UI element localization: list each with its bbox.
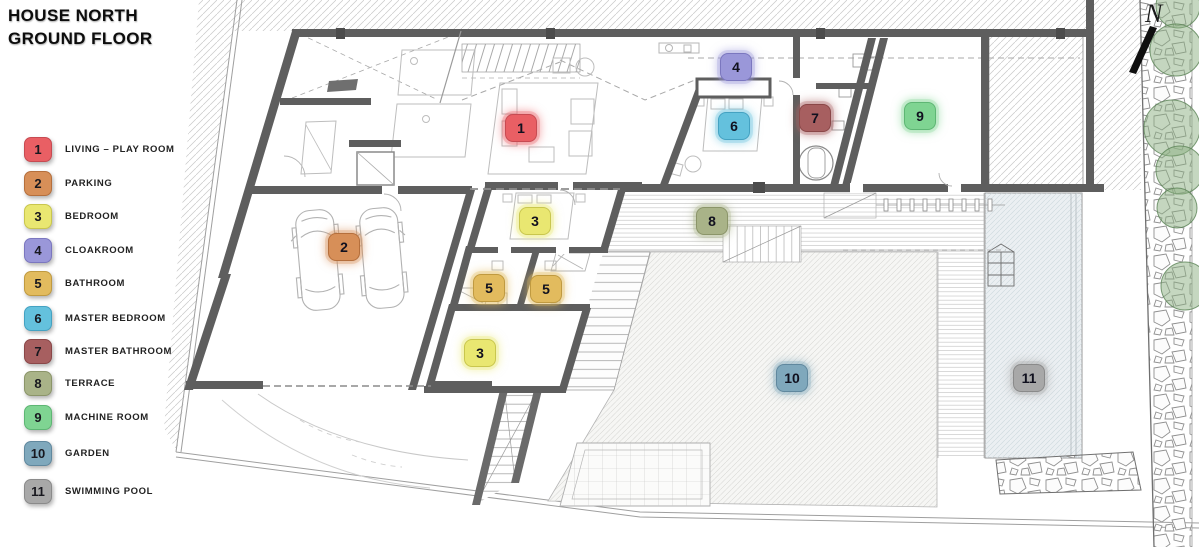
legend-item: 5 BATHROOM [24,272,125,295]
legend: 1 LIVING – PLAY ROOM 2 PARKING 3 BEDROOM… [0,0,220,547]
legend-badge: 6 [24,306,52,331]
legend-item-label: BATHROOM [65,278,125,289]
legend-item-label: PARKING [65,178,112,189]
room-badge: 6 [718,112,750,140]
room-badge: 3 [519,207,551,235]
legend-badge: 8 [24,371,52,396]
room-badge-number: 6 [730,118,738,134]
legend-badge-number: 8 [34,376,41,391]
legend-item: 7 MASTER BATHROOM [24,340,172,363]
room-badge-number: 8 [708,213,716,229]
legend-badge: 3 [24,204,52,229]
room-badge-number: 7 [811,110,819,126]
legend-item-label: MASTER BATHROOM [65,346,172,357]
paved-patio [560,443,710,506]
room-badge-number: 1 [517,120,525,136]
legend-item-label: SWIMMING POOL [65,486,153,497]
legend-badge-number: 10 [31,446,45,461]
legend-item-label: MACHINE ROOM [65,412,149,423]
legend-badge: 1 [24,137,52,162]
legend-item: 9 MACHINE ROOM [24,406,149,429]
legend-badge: 11 [24,479,52,504]
room-badge-number: 9 [916,108,924,124]
legend-item: 2 PARKING [24,172,112,195]
room-badge: 5 [473,274,505,302]
room-badge: 11 [1013,364,1045,392]
legend-badge-number: 3 [34,209,41,224]
legend-badge: 4 [24,238,52,263]
room-badge-number: 3 [531,213,539,229]
north-label: N [1144,0,1164,28]
room-badge-number: 2 [340,239,348,255]
room-badge: 7 [799,104,831,132]
room-badge-number: 4 [732,59,740,75]
legend-badge-number: 6 [34,311,41,326]
legend-item: 4 CLOAKROOM [24,239,134,262]
door-mat [327,79,358,92]
legend-badge: 9 [24,405,52,430]
legend-badge-number: 9 [34,410,41,425]
room-badge-number: 5 [542,281,550,297]
room-badge: 4 [720,53,752,81]
exterior-stair [472,390,542,505]
legend-badge-number: 11 [31,484,45,499]
tree-icon [1156,146,1199,194]
room-badge: 9 [904,102,936,130]
pebble-band [996,452,1141,494]
legend-item: 8 TERRACE [24,372,115,395]
legend-item: 10 GARDEN [24,442,110,465]
legend-badge-number: 2 [34,176,41,191]
legend-item: 6 MASTER BEDROOM [24,307,166,330]
shaft [357,152,394,185]
legend-item-label: TERRACE [65,378,115,389]
legend-item-label: MASTER BEDROOM [65,313,166,324]
floor-plan-page: N [0,0,1199,547]
legend-item-label: CLOAKROOM [65,245,134,256]
legend-badge-number: 5 [34,276,41,291]
legend-badge-number: 7 [34,344,41,359]
room-badge: 3 [464,339,496,367]
legend-badge: 2 [24,171,52,196]
legend-item-label: LIVING – PLAY ROOM [65,144,175,155]
room-badge: 8 [696,207,728,235]
legend-badge-number: 4 [34,243,41,258]
tree-icon [1157,188,1197,228]
legend-item-label: GARDEN [65,448,110,459]
room-badge-number: 5 [485,280,493,296]
wardrobe [697,79,770,97]
legend-item: 3 BEDROOM [24,205,119,228]
room-badge-number: 11 [1022,370,1037,386]
legend-item: 11 SWIMMING POOL [24,480,153,503]
legend-badge: 7 [24,339,52,364]
room-badge-number: 3 [476,345,484,361]
legend-badge-number: 1 [34,142,41,157]
room-badge: 5 [530,275,562,303]
legend-item-label: BEDROOM [65,211,119,222]
legend-badge: 5 [24,271,52,296]
tree-icon [1150,24,1199,76]
swimming-pool [985,193,1082,458]
legend-badge: 10 [24,441,52,466]
room-badge-number: 10 [784,370,800,386]
legend-item: 1 LIVING – PLAY ROOM [24,138,175,161]
room-badge: 1 [505,114,537,142]
room-badge: 10 [776,364,808,392]
room-badge: 2 [328,233,360,261]
